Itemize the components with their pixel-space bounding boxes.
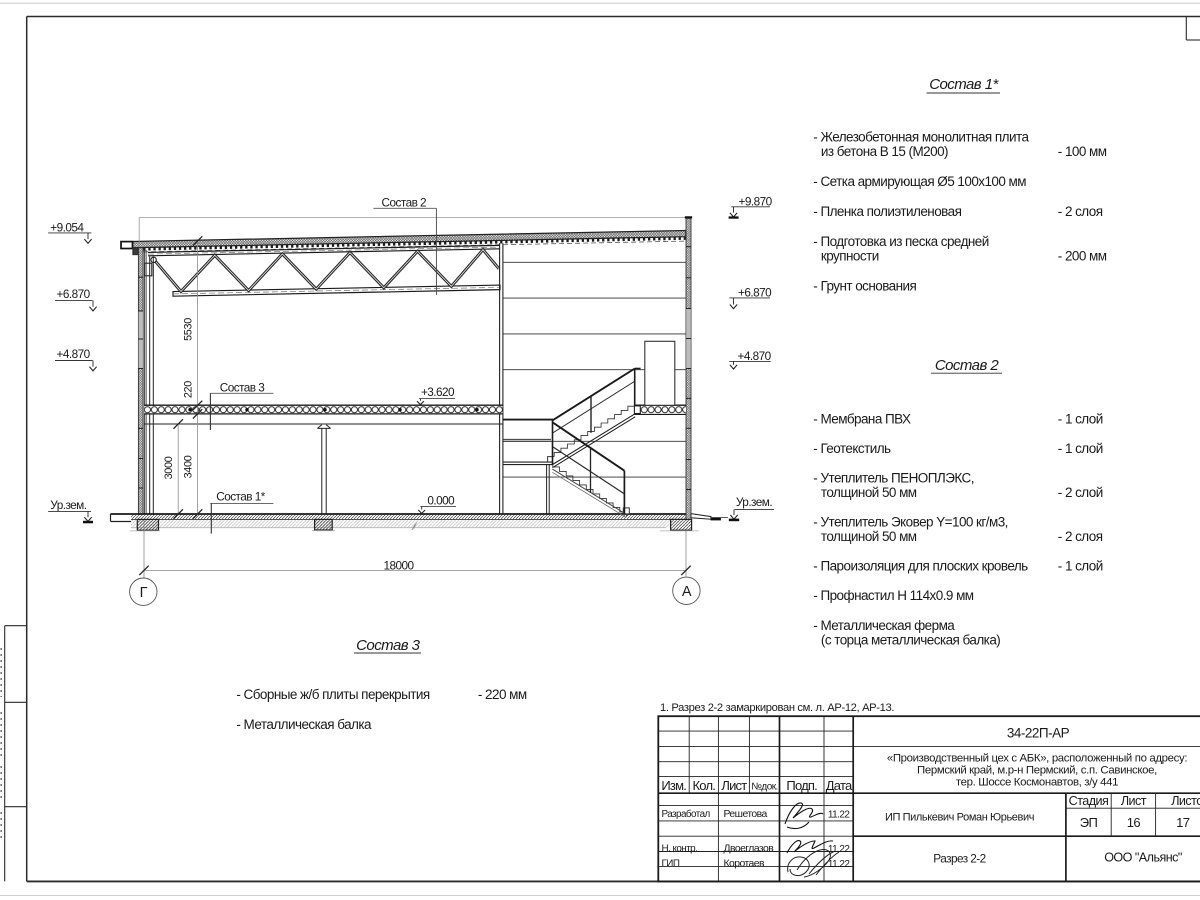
svg-text:0.000: 0.000	[427, 494, 455, 508]
svg-text:- Утеплитель Эковер Y=100 кг/м: - Утеплитель Эковер Y=100 кг/м3,	[813, 514, 1008, 529]
svg-text:- 200 мм: - 200 мм	[1058, 249, 1107, 264]
svg-text:(с торца металлическая балка): (с торца металлическая балка)	[821, 632, 1000, 647]
svg-text:Состав 3: Состав 3	[356, 637, 420, 654]
svg-text:- Утеплитель ПЕНОПЛЭКС,: - Утеплитель ПЕНОПЛЭКС,	[813, 471, 974, 486]
svg-text:Коротаев: Коротаев	[724, 859, 766, 870]
svg-text:Решетова: Решетова	[724, 809, 768, 820]
svg-text:- 2 слой: - 2 слой	[1058, 485, 1103, 500]
svg-text:- Металлическая ферма: - Металлическая ферма	[813, 618, 955, 633]
svg-text:Состав 2: Состав 2	[382, 195, 427, 209]
svg-text:- Сборные ж/б плиты перекрыти: - Сборные ж/б плиты перекрытия	[236, 687, 430, 702]
svg-text:Изм.: Изм.	[661, 778, 686, 793]
svg-text:толщиной 50 мм: толщиной 50 мм	[821, 485, 917, 500]
svg-text:5530: 5530	[182, 318, 194, 341]
svg-text:Разработал: Разработал	[662, 809, 711, 820]
svg-text:ООО "Альянс": ООО "Альянс"	[1104, 851, 1182, 865]
svg-text:Состав 1*: Состав 1*	[929, 76, 999, 93]
svg-text:Лист: Лист	[721, 778, 747, 793]
svg-text:- 220 мм: - 220 мм	[478, 687, 527, 702]
svg-text:№док.: №док.	[751, 781, 778, 792]
svg-text:Разрез 2-2: Разрез 2-2	[933, 852, 985, 866]
svg-text:Подп.: Подп.	[786, 778, 817, 793]
svg-text:Пермский край, м.р-н Пермский,: Пермский край, м.р-н Пермский, с.п. Сави…	[917, 765, 1157, 777]
svg-text:+6.870: +6.870	[738, 285, 772, 299]
svg-text:- 1 слой: - 1 слой	[1058, 558, 1103, 573]
svg-text:220: 220	[183, 381, 195, 398]
svg-text:толщиной 50 мм: толщиной 50 мм	[821, 529, 917, 544]
svg-text:тер. Шоссе Космонавтов, з/у 44: тер. Шоссе Космонавтов, з/у 441	[956, 777, 1118, 789]
svg-text:Состав 3: Состав 3	[220, 380, 266, 394]
svg-text:3000: 3000	[163, 456, 175, 479]
svg-text:- Пароизоляция для плоских кро: - Пароизоляция для плоских кровель	[813, 558, 1028, 573]
svg-text:+9.054: +9.054	[50, 220, 84, 234]
svg-text:+9.870: +9.870	[739, 194, 773, 208]
svg-text:- Профнастил Н 114х0.9 мм: - Профнастил Н 114х0.9 мм	[813, 588, 974, 603]
svg-text:- Грунт основания: - Грунт основания	[813, 279, 916, 294]
svg-text:- Подготовка из песка средней: - Подготовка из песка средней	[813, 234, 988, 249]
svg-text:Лист: Лист	[1121, 794, 1147, 808]
svg-text:- 100 мм: - 100 мм	[1058, 144, 1107, 159]
svg-text:из бетона В 15 (М200): из бетона В 15 (М200)	[821, 144, 948, 159]
svg-text:- Сетка армирующая Ø5 100х100: - Сетка армирующая Ø5 100х100 мм	[813, 174, 1026, 189]
svg-text:+4.870: +4.870	[738, 349, 772, 363]
svg-text:ИП Пилькевич Роман Юрьевич: ИП Пилькевич Роман Юрьевич	[885, 811, 1034, 823]
svg-text:ГИП: ГИП	[662, 859, 680, 870]
svg-text:Состав 1*: Состав 1*	[216, 489, 266, 503]
svg-text:Состав 2: Состав 2	[935, 357, 999, 374]
svg-text:- 1 слой: - 1 слой	[1058, 412, 1103, 427]
svg-text:Ур.зем.: Ур.зем.	[736, 495, 772, 509]
svg-text:- Пленка полиэтиленовая: - Пленка полиэтиленовая	[813, 204, 961, 219]
svg-text:- Мембрана ПВХ: - Мембрана ПВХ	[813, 412, 911, 427]
svg-text:А: А	[682, 584, 692, 600]
svg-text:Стадия: Стадия	[1069, 794, 1109, 808]
svg-text:Г: Г	[140, 585, 148, 601]
svg-text:Дата: Дата	[826, 778, 853, 793]
svg-text:11.22: 11.22	[828, 809, 851, 820]
svg-text:3400: 3400	[183, 455, 195, 478]
svg-text:- 1 слой: - 1 слой	[1058, 441, 1103, 456]
svg-text:«Производственный цех с АБК»,: «Производственный цех с АБК», расположен…	[887, 752, 1187, 764]
svg-text:Кол.: Кол.	[693, 778, 716, 793]
svg-text:- Металлическая балка: - Металлическая балка	[236, 717, 372, 732]
svg-text:+4.870: +4.870	[57, 347, 91, 361]
svg-text:1. Разрез 2-2 замаркирован см.: 1. Разрез 2-2 замаркирован см. л. АР-12,…	[660, 702, 894, 714]
svg-text:Листов: Листов	[1171, 794, 1200, 808]
svg-text:Ур.зем.: Ур.зем.	[50, 498, 86, 512]
svg-text:18000: 18000	[383, 558, 414, 572]
svg-text:16: 16	[1127, 815, 1141, 830]
svg-text:+6.870: +6.870	[57, 287, 91, 301]
svg-text:Двоеглазов: Двоеглазов	[724, 844, 775, 855]
svg-text:ЭП: ЭП	[1080, 815, 1098, 830]
svg-text:- 2 слоя: - 2 слоя	[1058, 204, 1103, 219]
svg-text:- Железобетонная монолитная п: - Железобетонная монолитная плита	[813, 130, 1029, 145]
svg-text:34-22П-АР: 34-22П-АР	[1007, 726, 1070, 741]
svg-text:11.22: 11.22	[828, 859, 851, 870]
svg-text:17: 17	[1176, 815, 1190, 830]
svg-text:- 2 слоя: - 2 слоя	[1058, 529, 1103, 544]
svg-text:+3.620: +3.620	[421, 385, 455, 399]
svg-text:- Геотекстиль: - Геотекстиль	[813, 441, 891, 456]
svg-text:Н. контр.: Н. контр.	[662, 844, 698, 855]
svg-text:крупности: крупности	[821, 249, 879, 264]
